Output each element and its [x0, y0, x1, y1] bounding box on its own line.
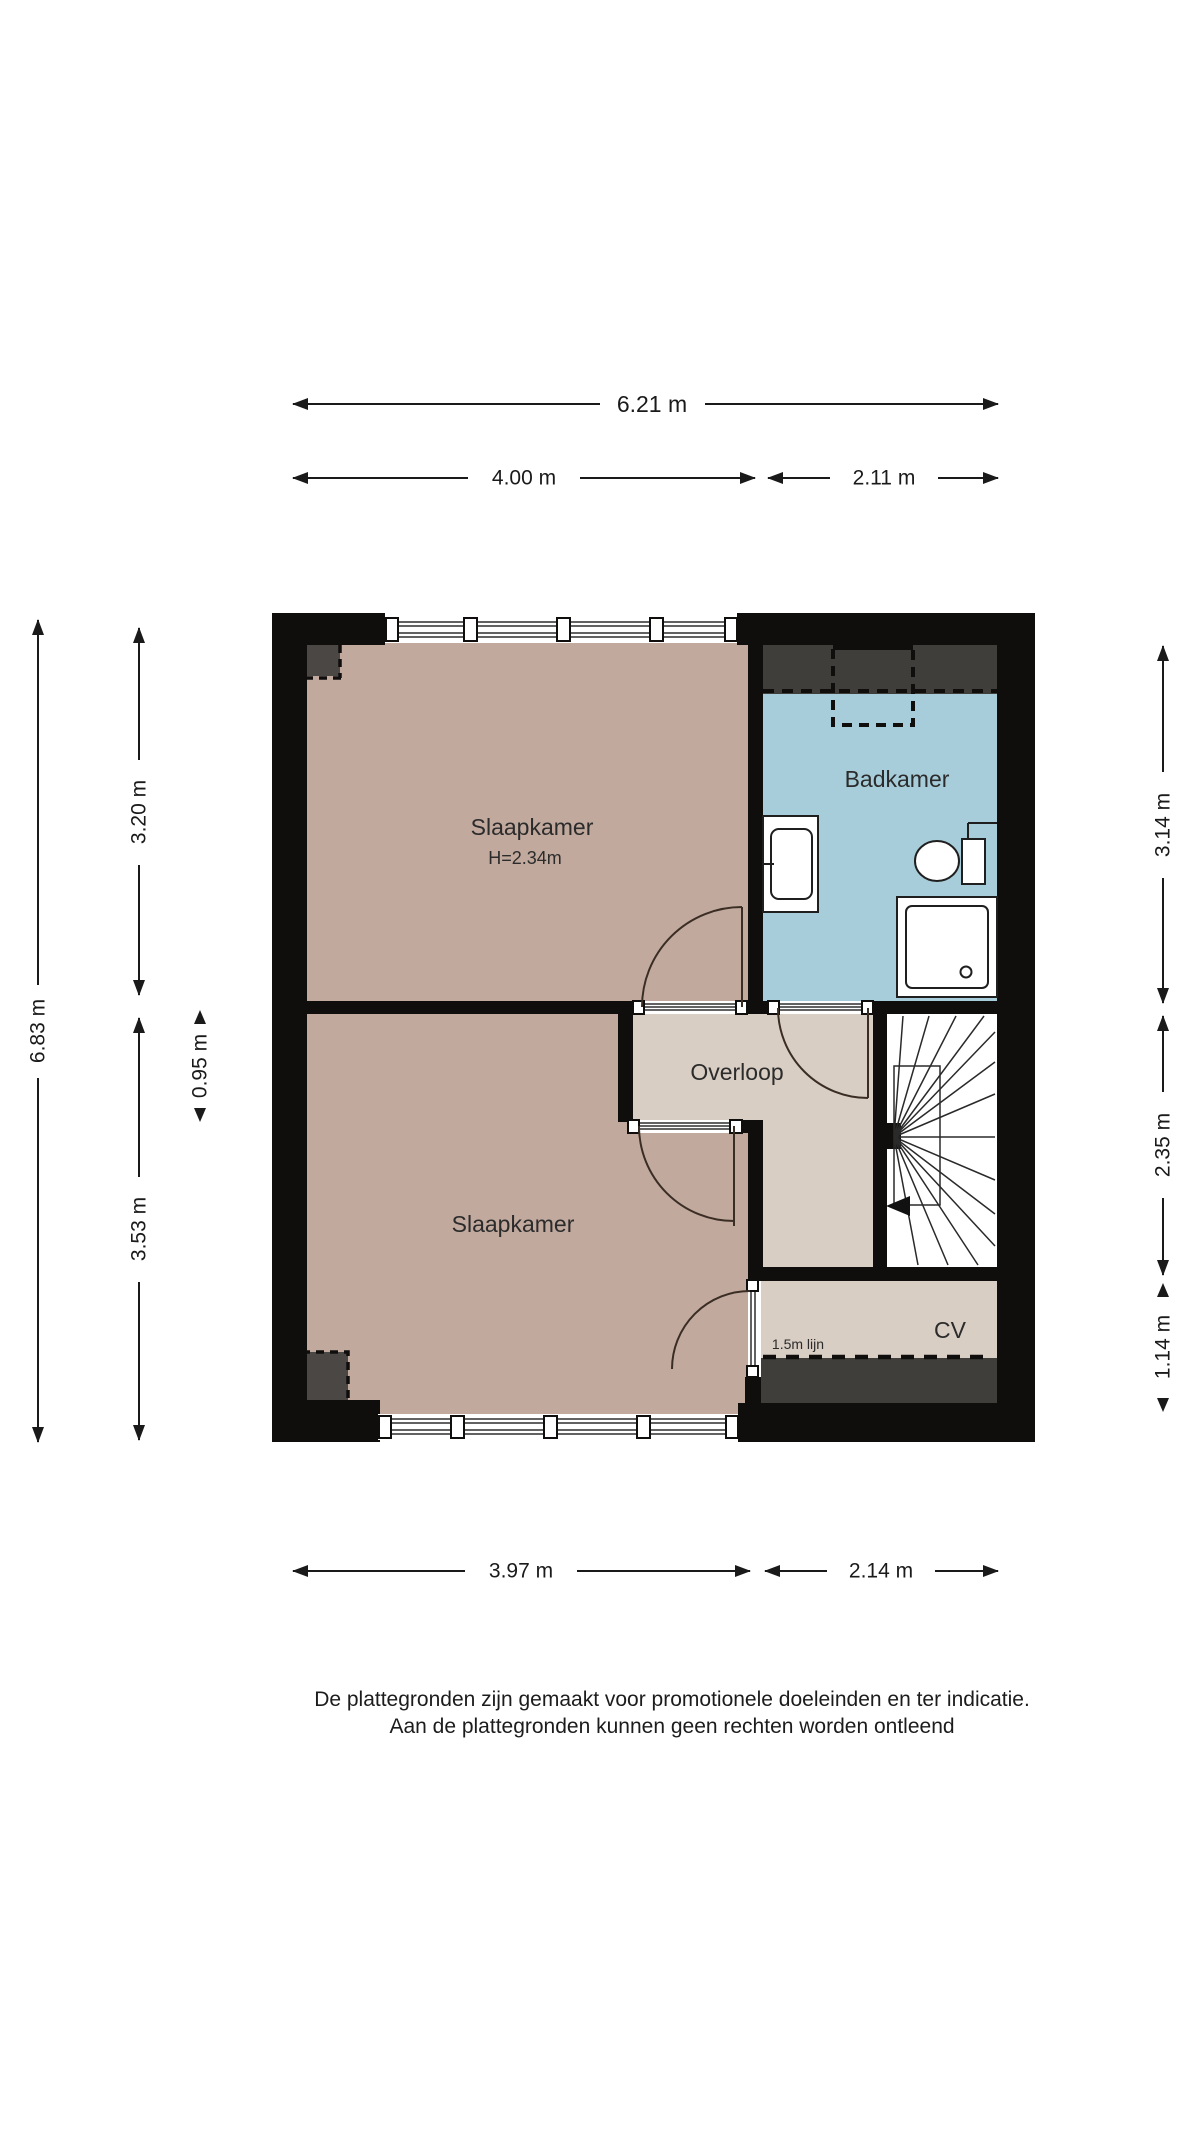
- wall-bedroom2-east: [748, 1133, 763, 1267]
- window-bottom: [378, 1414, 738, 1440]
- wall-bedroom2-north-stub: [742, 1120, 763, 1133]
- disclaimer-line-2: Aan de plattegronden kunnen geen rechten…: [389, 1715, 954, 1738]
- landing-floor-lower: [748, 1014, 873, 1267]
- washbasin-bowl: [771, 829, 812, 899]
- toilet-bowl: [915, 841, 959, 881]
- dim-left-middle: 0.95 m: [189, 1034, 212, 1098]
- landing-label: Overloop: [690, 1059, 783, 1085]
- wall-left: [272, 613, 307, 1442]
- shower-drain: [961, 967, 972, 978]
- floorplan-page: Slaapkamer H=2.34m Badkamer Overloop Sla…: [0, 0, 1200, 2132]
- bathroom-label: Badkamer: [845, 766, 950, 792]
- floors: [303, 642, 997, 1415]
- dim-right-top: 3.14 m: [1152, 793, 1175, 857]
- dim-top-left: 4.00 m: [492, 467, 556, 490]
- dim-left-top: 3.20 m: [128, 780, 151, 844]
- dim-bottom-left: 3.97 m: [489, 1560, 553, 1583]
- floorplan-drawing: Slaapkamer H=2.34m Badkamer Overloop Sla…: [0, 0, 1200, 2132]
- wall-bottom-left-corner: [272, 1400, 380, 1442]
- wall-right: [997, 613, 1035, 1442]
- boiler-door-opening: [748, 1291, 758, 1366]
- dim-top-right: 2.11 m: [853, 467, 916, 490]
- wall-boiler-west-stub: [745, 1377, 761, 1408]
- dim-right-middle: 2.35 m: [1152, 1113, 1175, 1177]
- bedroom-bottom-label: Slaapkamer: [452, 1211, 575, 1237]
- dim-left-bottom: 3.53 m: [128, 1197, 151, 1261]
- wall-landing-west: [618, 1014, 633, 1122]
- dim-left-total: 6.83 m: [27, 999, 50, 1063]
- wall-bedrooms-divider: [303, 1001, 633, 1014]
- wall-boiler-top: [748, 1267, 997, 1281]
- dim-right-bottom: 1.14 m: [1152, 1315, 1175, 1379]
- bedroom-top-label: Slaapkamer: [471, 814, 594, 840]
- wall-mid-stub: [747, 1001, 768, 1014]
- wall-under-bathroom: [873, 1001, 997, 1014]
- shower-tray-inner: [906, 906, 988, 988]
- flue-block-top-left: [307, 645, 340, 676]
- boiler-label: CV: [934, 1317, 967, 1343]
- dim-bottom-right: 2.14 m: [849, 1560, 913, 1583]
- bedroom-top-height-note: H=2.34m: [488, 848, 562, 868]
- wall-bathroom-divider: [748, 642, 763, 1014]
- window-top: [385, 616, 737, 643]
- height-line-label: 1.5m lijn: [772, 1336, 824, 1352]
- dim-top-total: 6.21 m: [617, 391, 687, 417]
- disclaimer-line-1: De plattegronden zijn gemaakt voor promo…: [314, 1688, 1030, 1711]
- boiler-lowered-strip: [761, 1358, 997, 1408]
- disclaimer: De plattegronden zijn gemaakt voor promo…: [314, 1688, 1030, 1738]
- toilet-cistern: [962, 839, 985, 884]
- wall-bottom-right: [738, 1403, 1035, 1442]
